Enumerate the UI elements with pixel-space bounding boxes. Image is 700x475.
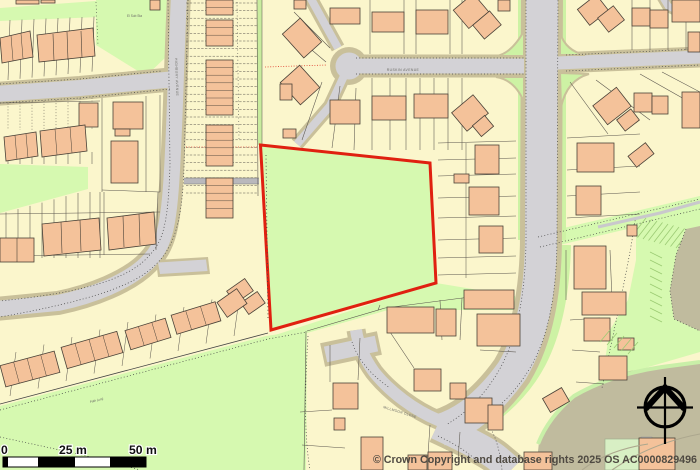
svg-text:50 m: 50 m [129,443,157,457]
svg-text:0: 0 [1,443,8,457]
svg-text:© Crown Copyright and database: © Crown Copyright and database rights 20… [373,454,697,466]
svg-text:25 m: 25 m [59,443,87,457]
svg-text:El Sub Sta: El Sub Sta [127,14,142,18]
svg-text:RUSKIN AVENUE: RUSKIN AVENUE [387,68,420,72]
